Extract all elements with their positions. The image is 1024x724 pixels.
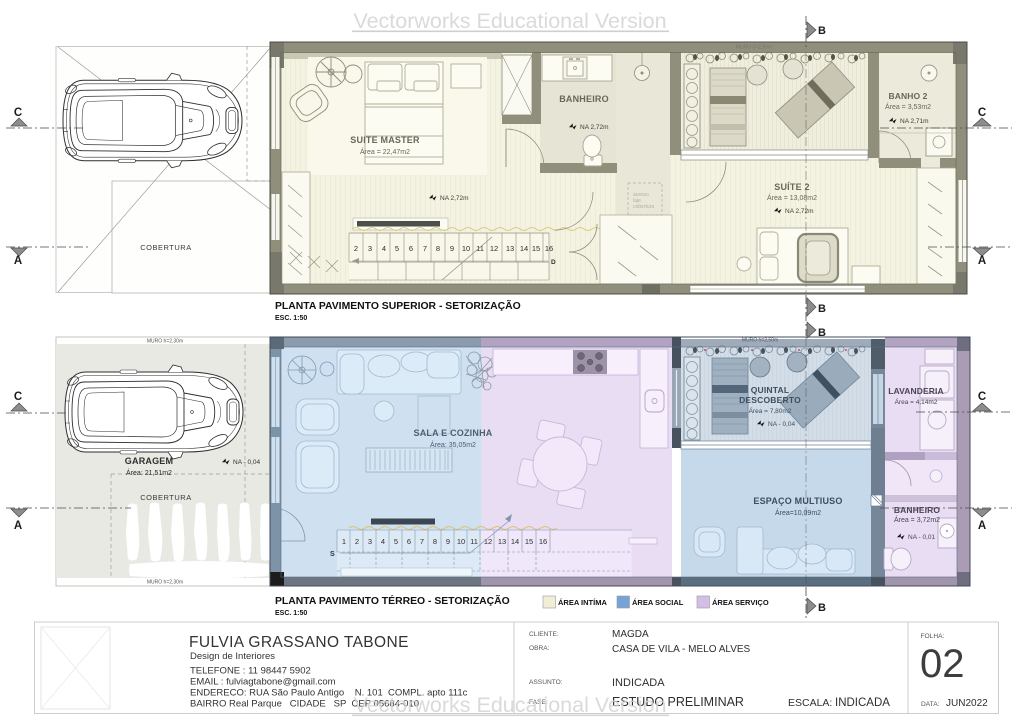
svg-text:BANHO 2: BANHO 2 (889, 91, 928, 101)
svg-text:9: 9 (446, 537, 450, 546)
svg-text:ÁREA SERVIÇO: ÁREA SERVIÇO (712, 598, 769, 607)
svg-text:Área = 13,08m2: Área = 13,08m2 (767, 193, 817, 202)
svg-text:Área=10,09m2: Área=10,09m2 (775, 508, 821, 517)
svg-text:5: 5 (395, 244, 399, 253)
svg-text:S: S (330, 551, 335, 558)
svg-text:6: 6 (407, 537, 411, 546)
svg-text:ESC. 1:50: ESC. 1:50 (275, 610, 307, 617)
svg-text:6: 6 (409, 244, 413, 253)
svg-text:TELEFONE : 11 98447 5902: TELEFONE : 11 98447 5902 (190, 666, 311, 677)
svg-text:QUINTAL: QUINTAL (751, 385, 790, 395)
svg-text:Área = 22,47m2: Área = 22,47m2 (360, 147, 410, 156)
svg-text:LAVANDERIA: LAVANDERIA (888, 386, 943, 396)
svg-text:8: 8 (433, 537, 437, 546)
svg-text:7: 7 (423, 244, 427, 253)
svg-text:Design de Interiores: Design de Interiores (190, 651, 275, 662)
svg-text:11: 11 (470, 537, 478, 546)
svg-text:OBRA:: OBRA: (529, 645, 550, 652)
svg-text:PLANTA PAVIMENTO SUPERIOR - SE: PLANTA PAVIMENTO SUPERIOR - SETORIZAÇÃO (275, 299, 521, 312)
svg-text:SALA E COZINHA: SALA E COZINHA (414, 428, 493, 438)
svg-text:9: 9 (450, 244, 454, 253)
svg-text:NA 2,72m: NA 2,72m (580, 124, 609, 131)
svg-text:FULVIA GRASSANO TABONE: FULVIA GRASSANO TABONE (189, 634, 409, 651)
svg-text:3: 3 (368, 244, 372, 253)
svg-text:ESCALA:: ESCALA: (788, 697, 832, 709)
svg-text:Área = 3,72m2: Área = 3,72m2 (894, 515, 940, 524)
svg-text:JUN2022: JUN2022 (946, 698, 988, 709)
svg-text:INDICADA: INDICADA (835, 697, 890, 709)
svg-text:COBERTURA: COBERTURA (140, 243, 191, 252)
svg-text:7: 7 (420, 537, 424, 546)
svg-text:MURO h=2,50m: MURO h=2,50m (736, 45, 772, 51)
svg-text:C: C (978, 391, 986, 403)
svg-text:GARAGEM: GARAGEM (125, 456, 173, 466)
svg-text:4: 4 (382, 244, 386, 253)
svg-text:Área: 21,51m2: Área: 21,51m2 (126, 468, 172, 477)
svg-text:NA 2,72m: NA 2,72m (785, 208, 814, 215)
svg-text:DATA:: DATA: (921, 701, 940, 708)
svg-text:2: 2 (354, 244, 358, 253)
svg-text:14: 14 (511, 537, 519, 546)
svg-text:NA 2,71m: NA 2,71m (900, 118, 929, 125)
svg-text:NA - 0,04: NA - 0,04 (768, 421, 795, 428)
svg-text:5: 5 (394, 537, 398, 546)
svg-text:B: B (818, 327, 826, 339)
svg-text:MURO h=2,50m: MURO h=2,50m (742, 338, 778, 344)
svg-text:SUITE MASTER: SUITE MASTER (350, 135, 420, 145)
svg-text:4: 4 (381, 537, 385, 546)
svg-text:15: 15 (525, 537, 533, 546)
svg-text:INDICADA: INDICADA (612, 677, 665, 689)
svg-text:NA - 0,04: NA - 0,04 (233, 459, 260, 466)
svg-text:10: 10 (462, 244, 470, 253)
svg-text:NA 2,72m: NA 2,72m (440, 195, 469, 202)
svg-text:DESCOBERTO: DESCOBERTO (739, 395, 801, 405)
svg-text:ÁREA SOCIAL: ÁREA SOCIAL (632, 598, 684, 607)
svg-text:B: B (818, 303, 826, 315)
svg-text:ASSUNTO:: ASSUNTO: (529, 679, 563, 686)
svg-text:COBERTURA: COBERTURA (140, 493, 191, 502)
svg-text:1: 1 (342, 537, 346, 546)
svg-text:2: 2 (355, 537, 359, 546)
svg-text:15: 15 (532, 244, 540, 253)
svg-text:02: 02 (920, 642, 965, 686)
svg-text:CLIENTE:: CLIENTE: (529, 631, 559, 638)
svg-text:Área = 3,53m2: Área = 3,53m2 (885, 102, 931, 111)
svg-text:C: C (14, 107, 22, 119)
svg-text:A: A (14, 255, 22, 267)
svg-text:EMAIL : fulviagtabone@gmail.co: EMAIL : fulviagtabone@gmail.com (190, 677, 336, 688)
svg-text:BANHEIRO: BANHEIRO (894, 505, 940, 515)
svg-text:A: A (978, 255, 986, 267)
svg-text:Área = 4,14m2: Área = 4,14m2 (895, 397, 938, 406)
svg-text:C: C (978, 107, 986, 119)
svg-text:A: A (978, 520, 986, 532)
svg-text:A: A (14, 520, 22, 532)
svg-text:8: 8 (436, 244, 440, 253)
svg-text:ÁREA INTÍMA: ÁREA INTÍMA (558, 598, 607, 607)
svg-text:MAGDA: MAGDA (612, 629, 649, 640)
svg-text:PLANTA PAVIMENTO TÉRREO - SETO: PLANTA PAVIMENTO TÉRREO - SETORIZAÇÃO (275, 594, 510, 607)
svg-text:FOLHA:: FOLHA: (921, 633, 945, 640)
svg-text:ESC. 1:50: ESC. 1:50 (275, 315, 307, 322)
svg-text:C: C (14, 391, 22, 403)
svg-text:B: B (818, 602, 826, 614)
svg-text:10: 10 (457, 537, 465, 546)
svg-text:13: 13 (498, 537, 506, 546)
svg-text:ESPAÇO MULTIUSO: ESPAÇO MULTIUSO (753, 496, 842, 506)
svg-text:SUÍTE 2: SUÍTE 2 (774, 182, 809, 192)
svg-text:16: 16 (539, 537, 547, 546)
svg-text:MURO h=2,30m: MURO h=2,30m (147, 339, 183, 345)
svg-text:Vectorworks Educational Versio: Vectorworks Educational Version (353, 693, 666, 717)
svg-text:14: 14 (520, 244, 528, 253)
svg-text:12: 12 (490, 244, 498, 253)
svg-text:BANHEIRO: BANHEIRO (559, 94, 609, 104)
svg-text:3: 3 (368, 537, 372, 546)
svg-text:Vectorworks Educational Versio: Vectorworks Educational Version (353, 9, 666, 33)
svg-text:D: D (551, 259, 556, 266)
svg-text:Área: 35,05m2: Área: 35,05m2 (430, 440, 476, 449)
svg-text:CASA DE VILA - MELO ALVES: CASA DE VILA - MELO ALVES (612, 644, 751, 655)
svg-text:13: 13 (506, 244, 514, 253)
svg-text:B: B (818, 25, 826, 37)
svg-text:cobertura: cobertura (633, 204, 654, 210)
svg-text:NA - 0,01: NA - 0,01 (908, 534, 935, 541)
svg-text:Área = 7,80m2: Área = 7,80m2 (749, 406, 792, 415)
svg-text:MURO h=2,30m: MURO h=2,30m (147, 580, 183, 586)
